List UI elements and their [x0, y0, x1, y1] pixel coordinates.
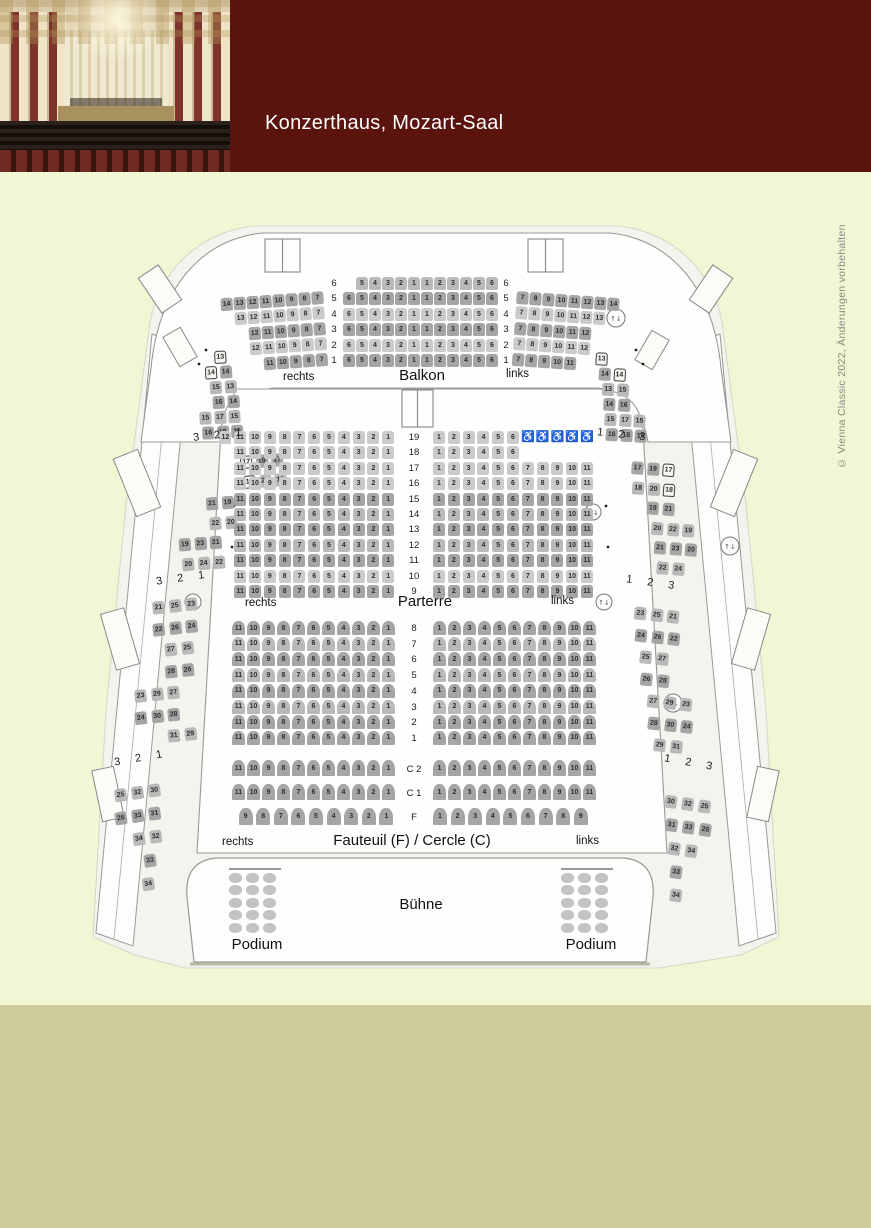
seat [263, 923, 276, 933]
seat: 2 [434, 339, 446, 352]
seat: 5 [492, 477, 504, 490]
seat: 11 [232, 731, 245, 745]
seat: 25 [698, 799, 712, 814]
seat: 3 [352, 621, 365, 635]
seat: 5 [493, 668, 506, 682]
seat: 5 [356, 339, 368, 352]
seat: 5 [322, 668, 335, 682]
seat: 1 [382, 446, 394, 459]
seat: 15 [604, 413, 617, 427]
seat: 9 [553, 700, 566, 714]
seat: 7 [539, 808, 553, 825]
row-label: 6 [499, 277, 513, 290]
seat: 31 [665, 818, 679, 833]
seat: 5 [322, 684, 335, 698]
seat: 5 [493, 731, 506, 745]
seat: 10 [247, 715, 260, 729]
seat: 15 [210, 381, 223, 395]
seat: 8 [556, 808, 570, 825]
seat: 10 [272, 294, 285, 308]
side-rows-label: 1 2 3 [663, 752, 719, 773]
seat: 4 [477, 477, 489, 490]
seat: 7 [293, 554, 305, 567]
seat: 32 [149, 829, 163, 844]
seat: 7 [523, 684, 536, 698]
podium-right-label: Podium [554, 936, 628, 953]
seat: 3 [463, 570, 475, 583]
seat: 26 [181, 662, 194, 676]
seat: 8 [298, 292, 311, 306]
seat: 7 [292, 700, 305, 714]
seat: 9 [264, 493, 276, 506]
seat: 3 [382, 308, 394, 321]
seat [246, 873, 259, 883]
seat: 5 [493, 760, 506, 776]
seat: 2 [434, 323, 446, 336]
seat: 34 [684, 844, 698, 859]
seat: 1 [382, 621, 395, 635]
fauteuil-rechts-label: rechts [222, 836, 253, 848]
seat: 1 [408, 308, 420, 321]
seat [578, 923, 591, 933]
row-label: 1 [400, 732, 428, 745]
seat: 5 [322, 700, 335, 714]
seat: 8 [277, 684, 290, 698]
seat: 7 [523, 700, 536, 714]
seat [561, 873, 574, 883]
seat: 7 [292, 621, 305, 635]
seat: 6 [291, 808, 305, 825]
seat: 1 [433, 477, 445, 490]
seat: 3 [382, 323, 394, 336]
row-label: 15 [400, 493, 428, 506]
seat: 3 [353, 570, 365, 583]
seat: 5 [493, 715, 506, 729]
seat: 10 [249, 493, 261, 506]
seat: 4 [478, 760, 491, 776]
seat: 10 [555, 294, 568, 308]
seat: 4 [369, 308, 381, 321]
seat: 2 [367, 508, 379, 521]
seat: 19 [682, 523, 695, 537]
seat: 23 [194, 537, 207, 551]
seat: 3 [463, 477, 475, 490]
seat: 2 [434, 308, 446, 321]
seat: 10 [247, 684, 260, 698]
row-label: 2 [400, 716, 428, 729]
seat: 10 [249, 508, 261, 521]
seat: 2 [448, 684, 461, 698]
seat: 23 [134, 689, 147, 703]
footer: VIENNA CLASSIC ONLINE TICKET OFFICE SERV… [0, 1005, 871, 1228]
seat: 2 [448, 539, 460, 552]
seat: 16 [617, 398, 630, 412]
seat: 6 [508, 684, 521, 698]
seat: 8 [277, 700, 290, 714]
seat: 28 [164, 664, 177, 678]
seat: 1 [382, 715, 395, 729]
seat: 6 [308, 585, 320, 598]
seat: 6 [508, 668, 521, 682]
seat: 13 [234, 312, 247, 326]
seat: 2 [448, 508, 460, 521]
seat: 23 [679, 698, 692, 712]
row-label: 8 [400, 622, 428, 635]
seat: 25 [181, 641, 194, 655]
seat: 6 [507, 477, 519, 490]
seat: 7 [314, 337, 327, 351]
seat: 5 [322, 731, 335, 745]
seat: 2 [448, 431, 460, 444]
seat: 5 [322, 637, 335, 651]
seat: 27 [655, 652, 668, 666]
seat: 9 [264, 554, 276, 567]
row-label: F [400, 811, 428, 824]
seat: 8 [279, 554, 291, 567]
seat: 9 [539, 339, 552, 353]
seat: 28 [656, 674, 669, 688]
seat: 11 [583, 715, 596, 729]
seat: 2 [448, 784, 461, 800]
seat: 14 [607, 297, 620, 311]
seat: 3 [352, 784, 365, 800]
wheelchair-icon: ♿ [566, 431, 578, 444]
seat: 3 [463, 684, 476, 698]
seat: 12 [246, 296, 259, 310]
seat: 7 [293, 462, 305, 475]
seat: 11 [581, 570, 593, 583]
seat: 7 [523, 668, 536, 682]
row-label: 17 [400, 462, 428, 475]
seat: 11 [234, 570, 246, 583]
seat: 6 [507, 554, 519, 567]
seat: 10 [568, 784, 581, 800]
seat: 4 [337, 760, 350, 776]
seat: 3 [463, 523, 475, 536]
seat: 8 [538, 760, 551, 776]
seat: 6 [308, 554, 320, 567]
row-label: C 2 [400, 763, 428, 776]
seat: 7 [292, 684, 305, 698]
seat: 2 [367, 731, 380, 745]
seat: 3 [353, 554, 365, 567]
seat: 2 [448, 493, 460, 506]
seat: 7 [313, 322, 326, 336]
seat: 18 [632, 481, 645, 495]
seat: 5 [493, 684, 506, 698]
seat: 9 [264, 431, 276, 444]
seat: 2 [367, 493, 379, 506]
seat: 11 [232, 684, 245, 698]
seat: 11 [583, 731, 596, 745]
seat: 6 [308, 493, 320, 506]
row-label: 5 [400, 669, 428, 682]
seat: 5 [323, 523, 335, 536]
seat: 1 [433, 570, 445, 583]
seat: 9 [264, 508, 276, 521]
seat: 10 [551, 355, 564, 369]
seat: 4 [477, 446, 489, 459]
seat: 1 [382, 784, 395, 800]
seat: 10 [247, 760, 260, 776]
seat: 8 [277, 731, 290, 745]
seat [578, 898, 591, 908]
seat: 3 [463, 652, 476, 666]
row-label: 7 [400, 638, 428, 651]
row-label: 3 [400, 701, 428, 714]
seat: 1 [382, 462, 394, 475]
seat: 1 [382, 668, 395, 682]
seat: 9 [553, 652, 566, 666]
seat: 4 [460, 339, 472, 352]
seat: 8 [279, 446, 291, 459]
seat: 5 [309, 808, 323, 825]
seat: 2 [395, 339, 407, 352]
seat: 5 [323, 446, 335, 459]
seat: 4 [477, 462, 489, 475]
seat: 11 [567, 310, 580, 324]
seat: 8 [537, 493, 549, 506]
seat: 6 [308, 539, 320, 552]
seat: 3 [463, 539, 475, 552]
seat: 25 [650, 608, 663, 622]
seat: 32 [668, 841, 682, 856]
seat: 6 [307, 731, 320, 745]
seat: 6 [508, 700, 521, 714]
seat: 13 [224, 380, 237, 394]
seat: 11 [581, 539, 593, 552]
seat: 25 [168, 599, 181, 613]
seat: 8 [279, 462, 291, 475]
seat: 6 [507, 446, 519, 459]
seat: 7 [293, 523, 305, 536]
seat [246, 910, 259, 920]
seat: 3 [352, 684, 365, 698]
seat: 10 [247, 700, 260, 714]
seat: 7 [523, 637, 536, 651]
row-label: 1 [327, 354, 341, 367]
seat: 10 [274, 325, 287, 339]
seat: 6 [307, 700, 320, 714]
seat: 12 [248, 326, 261, 340]
seat: 8 [279, 539, 291, 552]
seat: 10 [568, 637, 581, 651]
seat: 20 [685, 543, 698, 557]
seat: 10 [568, 760, 581, 776]
seat: 5 [473, 308, 485, 321]
seat: 21 [152, 601, 165, 615]
seat: 8 [538, 652, 551, 666]
balkon-rechts-label: rechts [283, 371, 314, 383]
seat: 5 [322, 760, 335, 776]
seat: 9 [262, 700, 275, 714]
seat: 1 [433, 715, 446, 729]
seat: 1 [382, 477, 394, 490]
seat: 6 [308, 570, 320, 583]
seat: 8 [537, 523, 549, 536]
balkon-label: Balkon [377, 367, 467, 384]
seat: 5 [356, 354, 368, 367]
seat: 8 [279, 523, 291, 536]
seat: 4 [337, 668, 350, 682]
seat: 9 [540, 324, 553, 338]
seat: 18 [663, 483, 676, 497]
seat: 10 [568, 668, 581, 682]
seat: 8 [279, 585, 291, 598]
seat: 16 [212, 396, 225, 410]
seat: 4 [338, 493, 350, 506]
seat: 11 [583, 684, 596, 698]
seat: 11 [261, 325, 274, 339]
seat: 1 [382, 570, 394, 583]
balkon-links-label: links [506, 368, 529, 380]
seat: 2 [367, 523, 379, 536]
seat: 13 [602, 383, 615, 397]
seat: 3 [352, 715, 365, 729]
seat: 5 [492, 523, 504, 536]
seat: 22 [666, 522, 679, 536]
seat: 6 [307, 652, 320, 666]
seat: 4 [478, 731, 491, 745]
row-label: 6 [400, 653, 428, 666]
seat: 8 [528, 307, 541, 321]
seat: 11 [568, 295, 581, 309]
seat: 11 [583, 621, 596, 635]
seat: 5 [473, 292, 485, 305]
seat: 24 [134, 711, 147, 725]
seat: 9 [574, 808, 588, 825]
seat: 9 [262, 652, 275, 666]
wheelchair-icon: ♿ [551, 431, 563, 444]
seat: 22 [152, 622, 165, 636]
seat: 9 [264, 570, 276, 583]
row-label: 2 [499, 339, 513, 352]
seat: 11 [583, 784, 596, 800]
row-label: 4 [499, 308, 513, 321]
seat: 1 [421, 308, 433, 321]
seat: 12 [581, 296, 594, 310]
seat: 6 [307, 637, 320, 651]
seat: 3 [463, 637, 476, 651]
seat: 7 [523, 760, 536, 776]
seat: 1 [421, 339, 433, 352]
seat [229, 923, 242, 933]
seat: 5 [473, 323, 485, 336]
seat: 6 [508, 637, 521, 651]
seat: 5 [492, 508, 504, 521]
seat: 9 [551, 523, 563, 536]
seat: 3 [447, 339, 459, 352]
seat: 4 [460, 292, 472, 305]
seat: 6 [307, 784, 320, 800]
seat: 12 [249, 342, 262, 356]
seat: 10 [247, 621, 260, 635]
seat: 1 [421, 354, 433, 367]
seat: 26 [640, 672, 653, 686]
seat: 1 [433, 637, 446, 651]
seat: 9 [551, 570, 563, 583]
seat: 5 [356, 323, 368, 336]
seat: 1 [433, 523, 445, 536]
seat [561, 910, 574, 920]
seat: 9 [262, 621, 275, 635]
seat: 2 [395, 277, 407, 290]
seat: 31 [148, 806, 162, 821]
seat: 1 [408, 292, 420, 305]
seat: 9 [262, 668, 275, 682]
seat: 14 [220, 297, 233, 311]
seat: 2 [367, 431, 379, 444]
seat: 5 [492, 539, 504, 552]
seat: 4 [338, 554, 350, 567]
seat: 4 [338, 508, 350, 521]
seat: 8 [279, 570, 291, 583]
seat: 6 [508, 715, 521, 729]
seat: 11 [234, 477, 246, 490]
seat: 6 [308, 508, 320, 521]
seat: 4 [338, 585, 350, 598]
seat: 5 [473, 354, 485, 367]
seat: 8 [538, 621, 551, 635]
seat: 10 [566, 539, 578, 552]
seat: 8 [538, 668, 551, 682]
seat: 7 [293, 431, 305, 444]
seat: 4 [460, 308, 472, 321]
seat: 11 [234, 554, 246, 567]
seat: 7 [522, 585, 534, 598]
seat: 9 [262, 637, 275, 651]
seat: 2 [448, 523, 460, 536]
seat: 3 [344, 808, 358, 825]
seat: 11 [259, 295, 272, 309]
parterre-label: Parterre [370, 593, 480, 610]
seat: 6 [486, 323, 498, 336]
wheelchair-icon: ♿ [522, 431, 534, 444]
seat: 1 [433, 808, 447, 825]
seat: 1 [433, 652, 446, 666]
seat: 4 [478, 637, 491, 651]
seat: 6 [308, 477, 320, 490]
seat: 6 [343, 339, 355, 352]
seat: 7 [522, 570, 534, 583]
seat: 4 [337, 637, 350, 651]
seat: 9 [551, 554, 563, 567]
seat: 4 [338, 523, 350, 536]
seat: 1 [433, 668, 446, 682]
seat: 19 [647, 462, 660, 476]
seat: 2 [395, 323, 407, 336]
seat: 3 [353, 523, 365, 536]
seat: 5 [493, 637, 506, 651]
seat: 6 [507, 508, 519, 521]
seat: 32 [131, 785, 145, 800]
seat: 7 [522, 539, 534, 552]
seat: 11 [583, 668, 596, 682]
seat: 9 [538, 354, 551, 368]
seat: 10 [568, 731, 581, 745]
seat: 2 [367, 637, 380, 651]
seat: 9 [286, 308, 299, 322]
seat: 30 [664, 795, 678, 810]
seat: 31 [167, 729, 180, 743]
seat: 28 [647, 716, 660, 730]
seat: 2 [448, 446, 460, 459]
seat: 2 [367, 570, 379, 583]
seat: 3 [447, 323, 459, 336]
seat: 10 [247, 652, 260, 666]
seat: 21 [206, 497, 219, 511]
seat: 10 [249, 523, 261, 536]
